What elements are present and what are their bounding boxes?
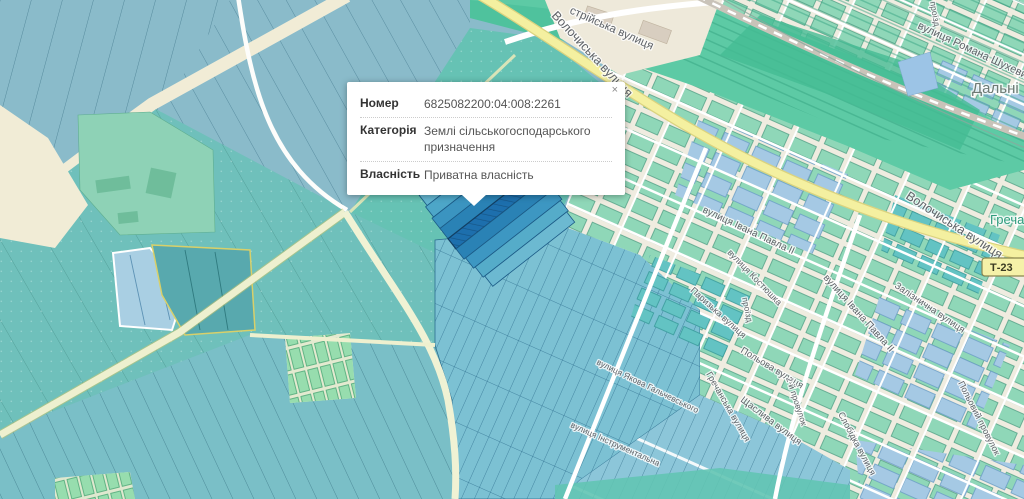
popup-label: Категорія	[360, 123, 424, 155]
parcel-info-popup: × Номер 6825082200:04:008:2261 Категорія…	[347, 82, 625, 195]
close-icon[interactable]: ×	[612, 85, 618, 96]
popup-row-ownership: Власність Приватна власність	[360, 161, 612, 188]
popup-label: Власність	[360, 167, 424, 183]
road-shield: Т-23	[982, 258, 1024, 276]
popup-arrow	[461, 194, 487, 206]
road-shield-text: Т-23	[990, 262, 1013, 274]
popup-value: Землі сільськогосподарського призначення	[424, 123, 612, 155]
popup-value: 6825082200:04:008:2261	[424, 96, 612, 112]
popup-value: Приватна власність	[424, 167, 612, 183]
popup-label: Номер	[360, 96, 424, 112]
place-label-dalni: Дальні	[972, 80, 1019, 97]
cadastral-map[interactable]: Волочиська вулиця Волочиська вулиця стрі…	[0, 0, 1024, 499]
popup-row-category: Категорія Землі сільськогосподарського п…	[360, 117, 612, 160]
cadastral-map-page: { "popup": { "close": "×", "rows": [ {"l…	[0, 0, 1024, 499]
place-label-hrechany: Гречани	[990, 212, 1024, 227]
popup-row-number: Номер 6825082200:04:008:2261	[360, 91, 612, 117]
